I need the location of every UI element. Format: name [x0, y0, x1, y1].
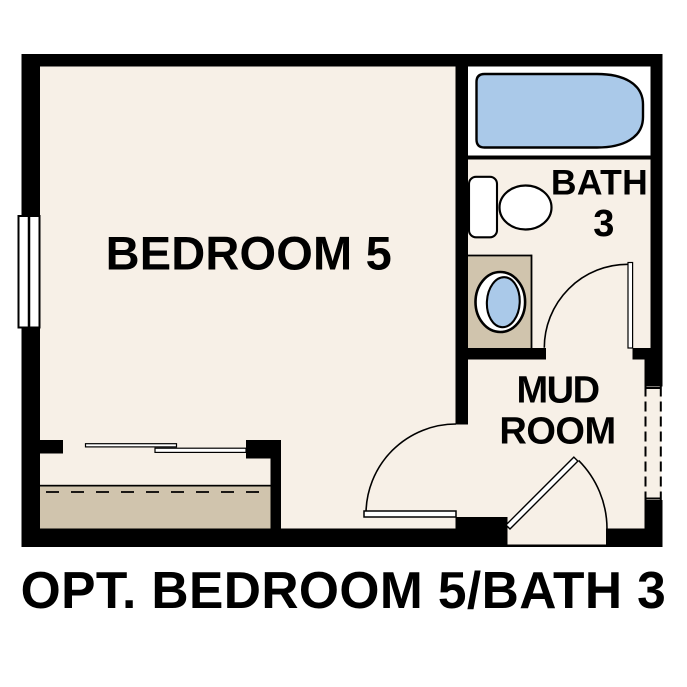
svg-text:OPT. BEDROOM 5/BATH 3: OPT. BEDROOM 5/BATH 3 — [21, 561, 667, 619]
svg-text:BEDROOM 5: BEDROOM 5 — [106, 227, 392, 280]
svg-text:BATH: BATH — [551, 162, 648, 202]
svg-text:MUD: MUD — [516, 370, 598, 412]
svg-text:ROOM: ROOM — [499, 411, 615, 453]
svg-text:3: 3 — [593, 203, 614, 245]
